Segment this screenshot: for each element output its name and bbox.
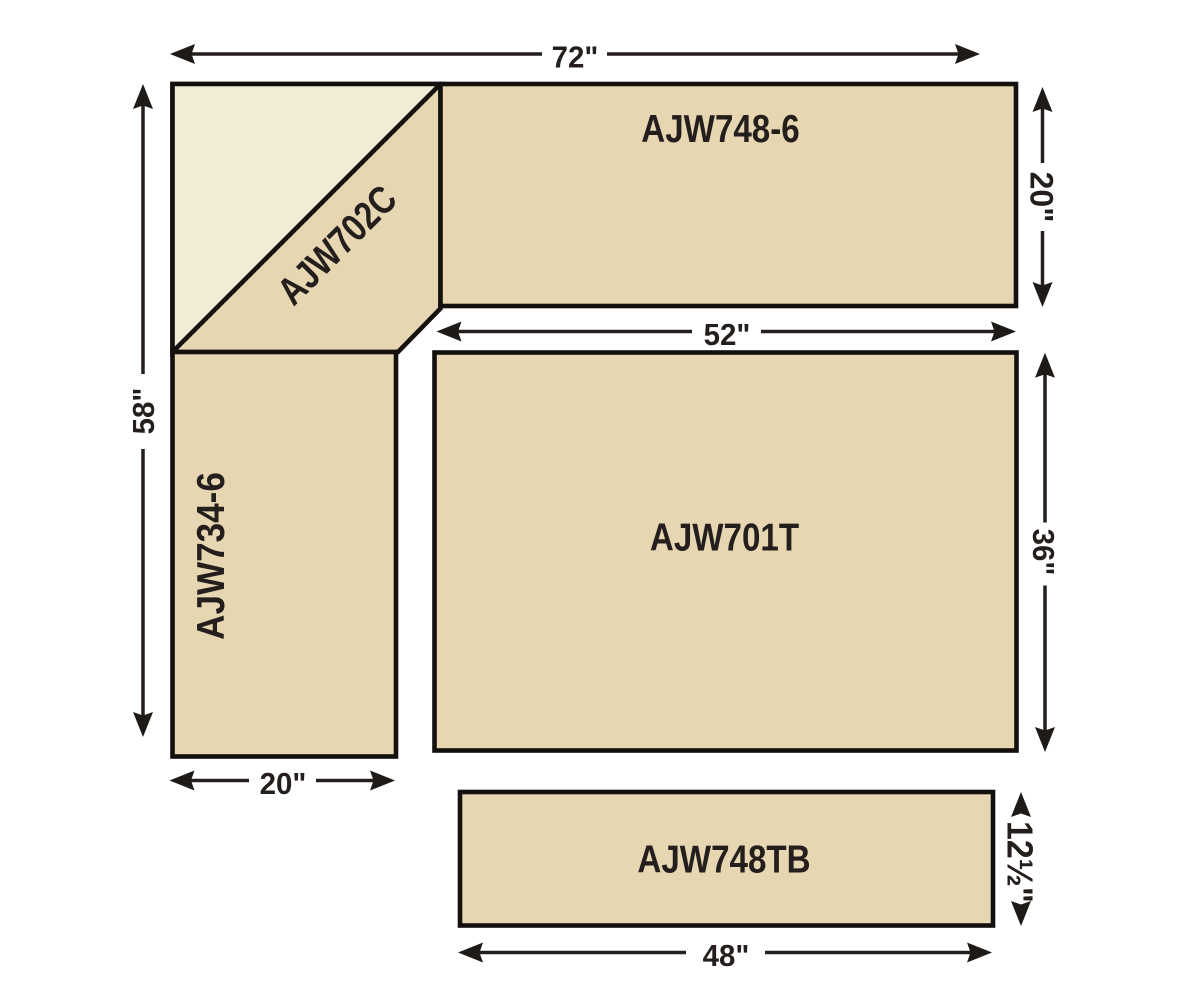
svg-text:12½": 12½" xyxy=(999,821,1039,903)
svg-text:58": 58" xyxy=(127,388,161,435)
svg-text:AJW701T: AJW701T xyxy=(650,515,799,559)
svg-text:52": 52" xyxy=(704,318,751,352)
svg-text:20": 20" xyxy=(1023,172,1059,223)
svg-text:20": 20" xyxy=(260,767,307,801)
svg-text:AJW734-6: AJW734-6 xyxy=(188,472,232,640)
svg-text:AJW748TB: AJW748TB xyxy=(637,837,810,881)
svg-text:36": 36" xyxy=(1026,529,1060,576)
svg-text:72": 72" xyxy=(552,41,599,75)
svg-text:48": 48" xyxy=(703,939,750,973)
svg-text:AJW748-6: AJW748-6 xyxy=(641,106,799,150)
